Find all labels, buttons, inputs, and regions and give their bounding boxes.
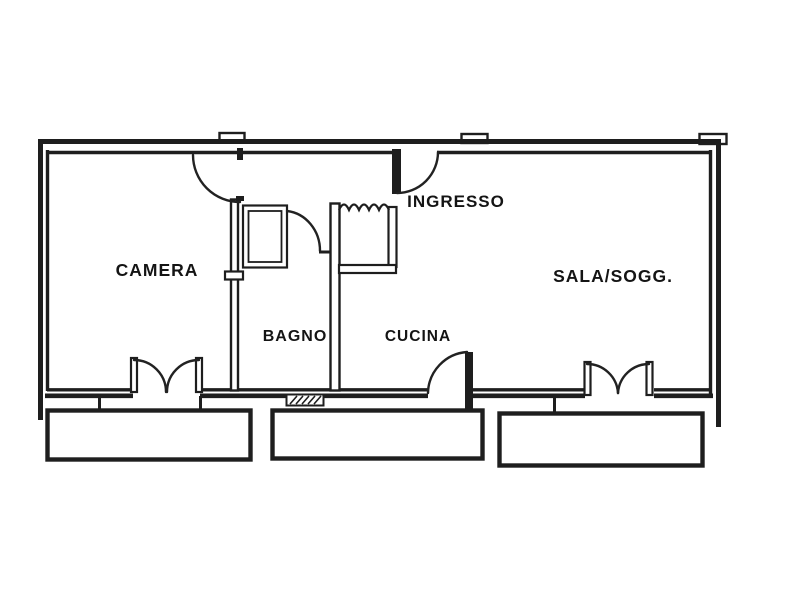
bagno-door — [287, 211, 331, 252]
floor-plan-canvas: CAMERA BAGNO CUCINA INGRESSO SALA/SOGG. — [0, 0, 800, 600]
sala-french-door — [585, 362, 653, 395]
bagno-closet — [243, 206, 287, 268]
cucina-closet-bottom-wall — [339, 265, 396, 273]
sala-french-right-arc — [618, 364, 649, 393]
ingresso-label: INGRESSO — [407, 192, 505, 211]
camera-door — [193, 148, 244, 202]
wall-camera-bagno — [231, 200, 238, 391]
bagno-vent — [287, 395, 324, 406]
balcony-left — [48, 411, 251, 460]
camera-door-leaf-tip — [236, 196, 244, 201]
camera-french-door — [131, 358, 202, 392]
floor-plan-drawing: CAMERA BAGNO CUCINA INGRESSO SALA/SOGG. — [0, 0, 800, 600]
camera-label: CAMERA — [116, 260, 199, 280]
sala-french-left-leaf — [585, 362, 591, 395]
camera-french-left-leaf — [131, 358, 137, 392]
wall-bagno-cucina — [331, 204, 340, 391]
camera-french-right-arc — [167, 360, 199, 392]
camera-door-arc — [193, 155, 240, 202]
sala-french-left-arc — [587, 364, 618, 393]
bagno-closet-outer — [243, 206, 287, 268]
camera-french-left-arc — [134, 360, 166, 392]
balcony-right — [500, 414, 703, 466]
cucina-closet-wavy-top — [339, 205, 389, 211]
sala-french-right-leaf — [647, 362, 653, 395]
cucina-closet — [339, 205, 397, 274]
camera-french-right-leaf — [196, 358, 202, 392]
wall-pier — [225, 272, 243, 280]
bagno-label: BAGNO — [263, 328, 328, 345]
cucina-label: CUCINA — [385, 328, 451, 345]
balconies — [48, 396, 703, 466]
entry-door — [392, 149, 438, 194]
cucina-door-arc — [428, 352, 467, 393]
bagno-door-arc — [287, 211, 320, 251]
balcony-middle — [273, 411, 483, 459]
cucina-door-leaf — [465, 352, 473, 412]
entry-door-leaf — [392, 149, 401, 194]
entry-door-arc — [397, 152, 438, 193]
cucina-balcony-door — [428, 352, 473, 412]
cucina-closet-right-wall — [389, 207, 397, 267]
sala-soggiorno-label: SALA/SOGG. — [553, 266, 673, 286]
